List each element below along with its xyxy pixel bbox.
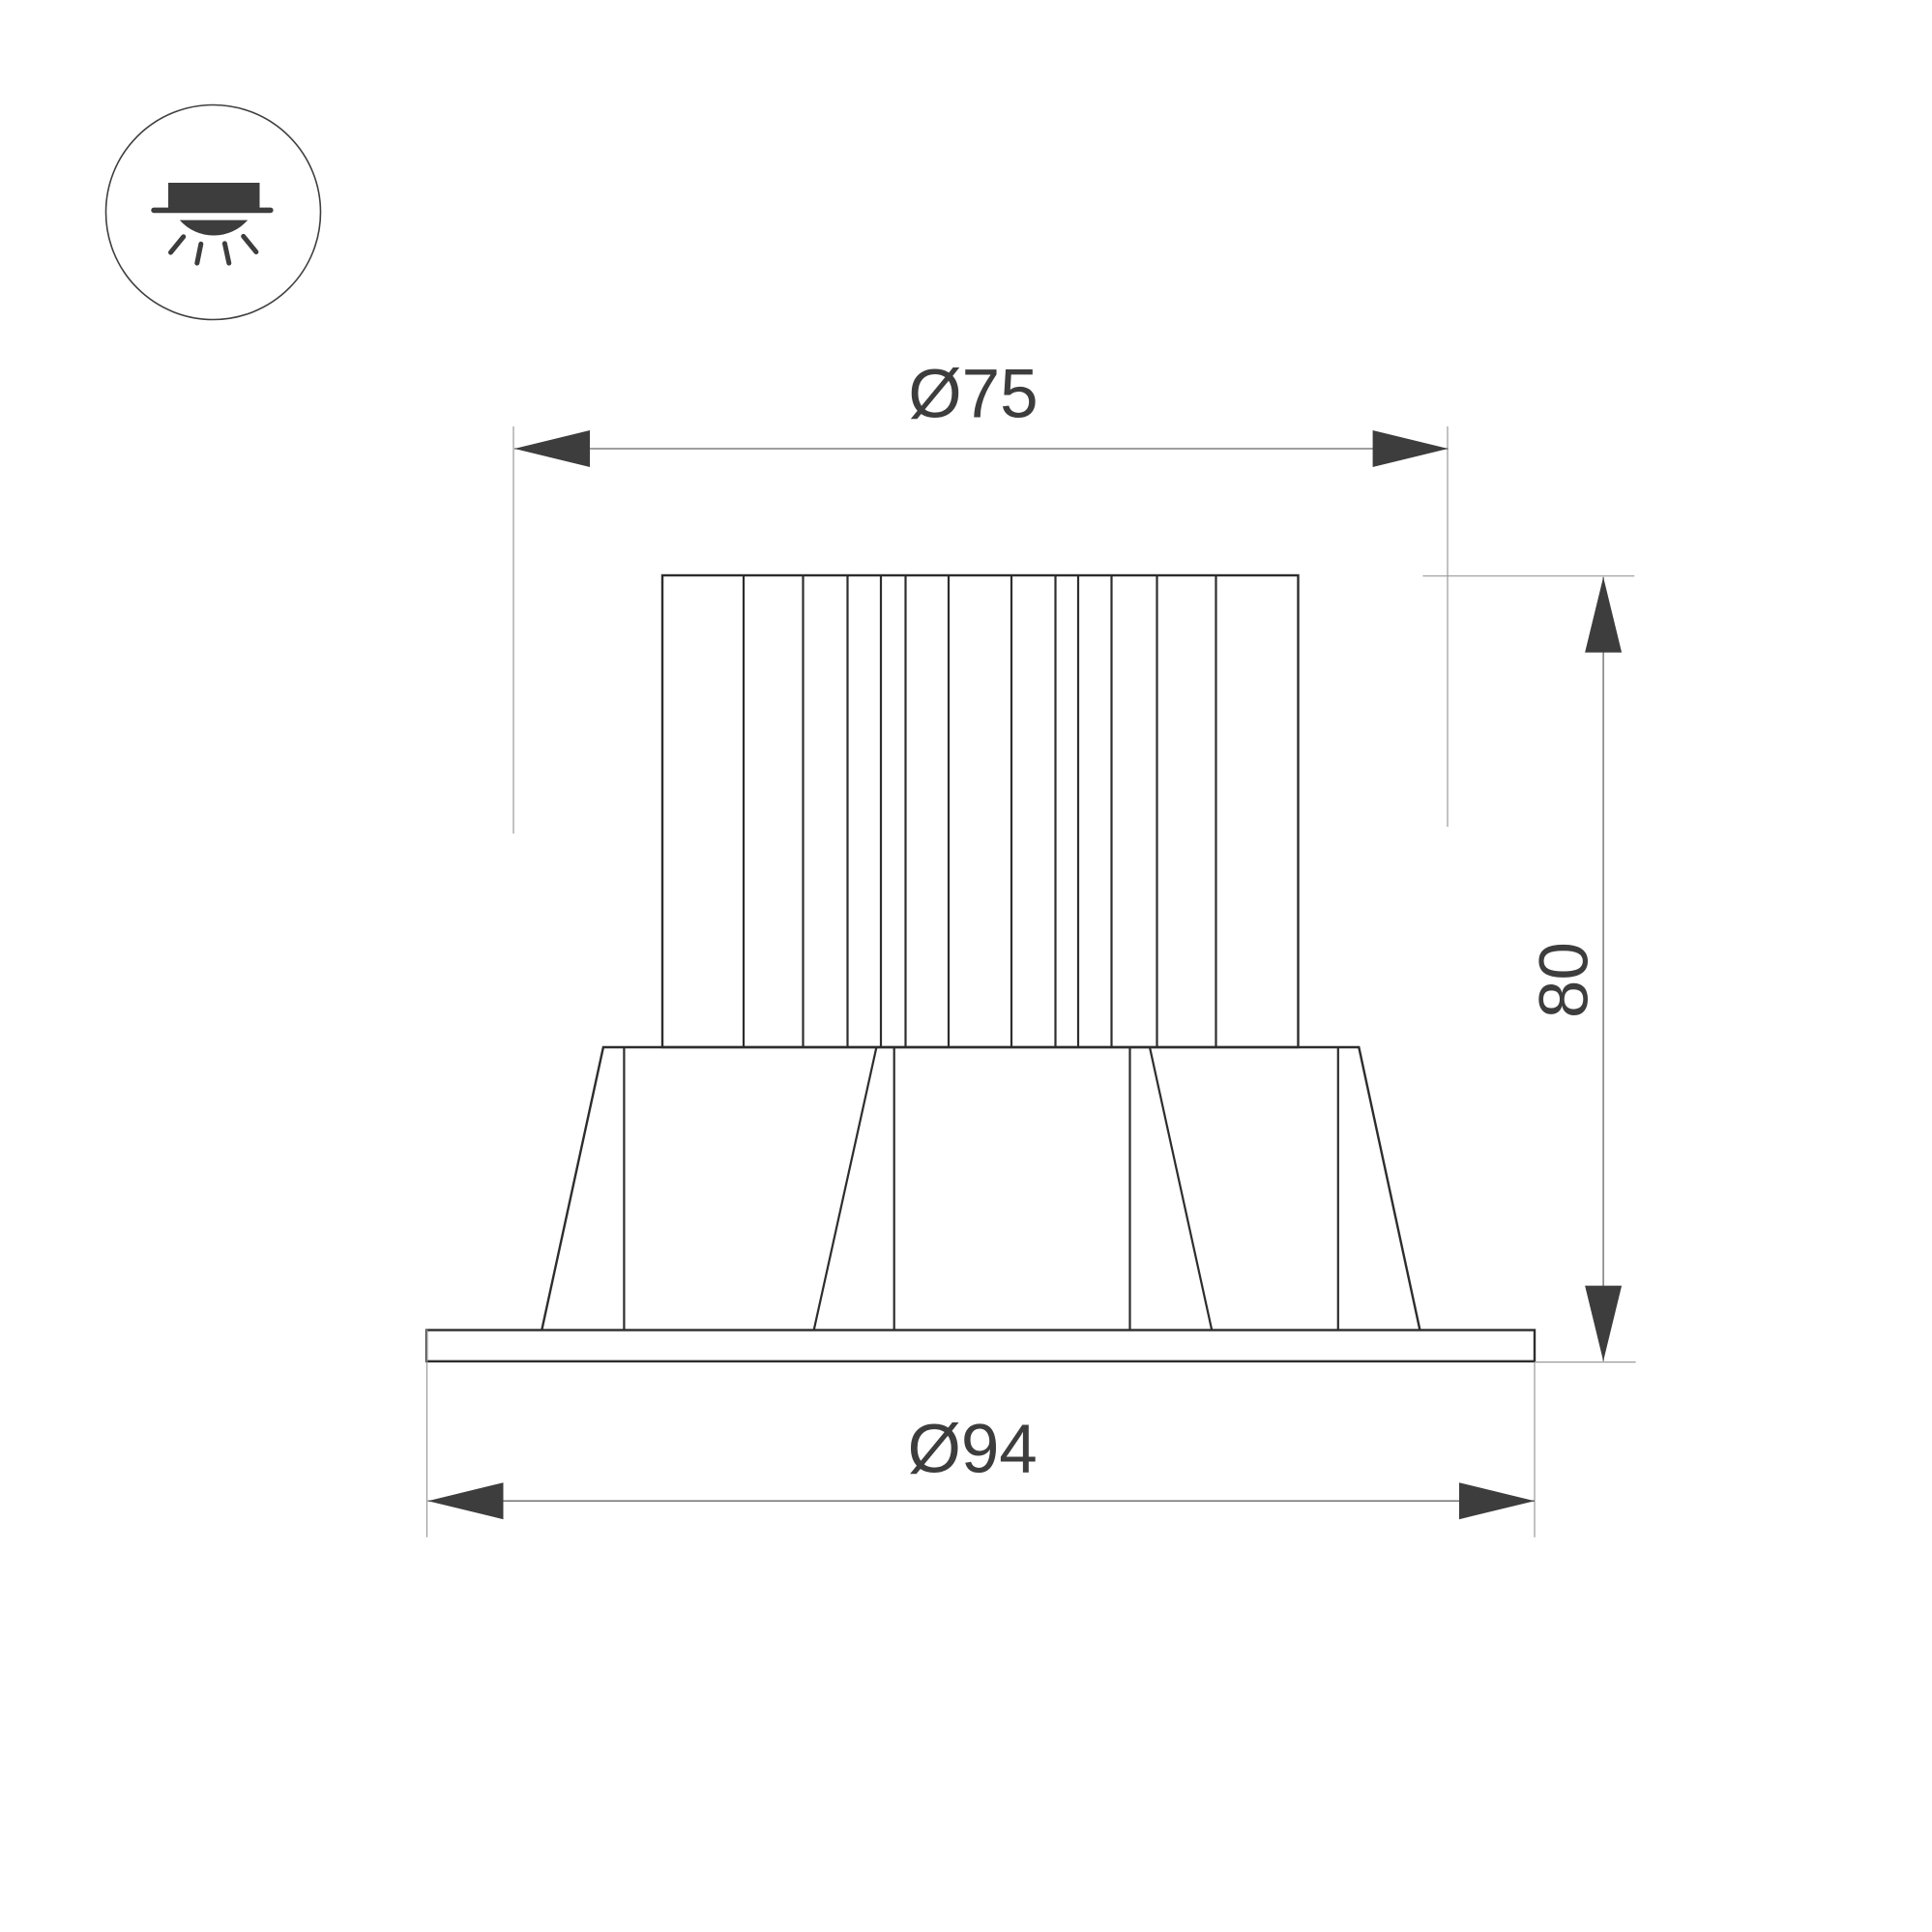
svg-text:Ø75: Ø75 — [908, 357, 1038, 433]
svg-text:80: 80 — [1526, 942, 1602, 1018]
svg-text:Ø94: Ø94 — [908, 1412, 1038, 1488]
